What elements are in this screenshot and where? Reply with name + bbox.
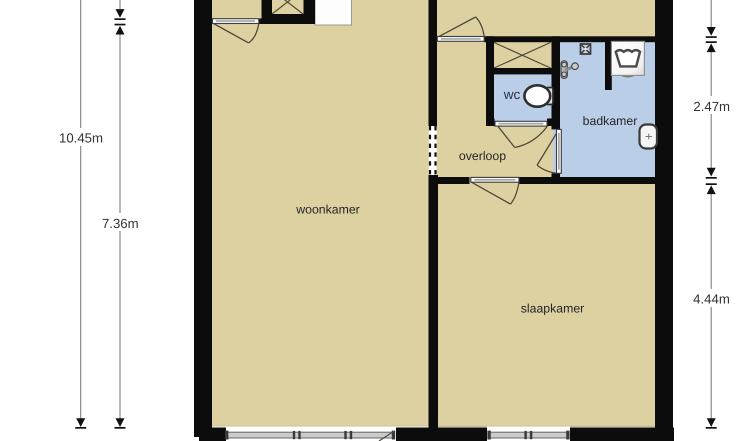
- svg-text:7.36m: 7.36m: [102, 216, 139, 231]
- svg-text:4.44m: 4.44m: [693, 291, 730, 306]
- svg-text:woonkamer: woonkamer: [295, 202, 360, 216]
- svg-text:slaapkamer: slaapkamer: [521, 302, 585, 316]
- svg-text:wc: wc: [503, 87, 521, 102]
- svg-text:2.47m: 2.47m: [693, 99, 730, 114]
- svg-text:overloop: overloop: [459, 149, 506, 163]
- svg-text:badkamer: badkamer: [583, 114, 638, 128]
- svg-text:10.45m: 10.45m: [59, 130, 103, 145]
